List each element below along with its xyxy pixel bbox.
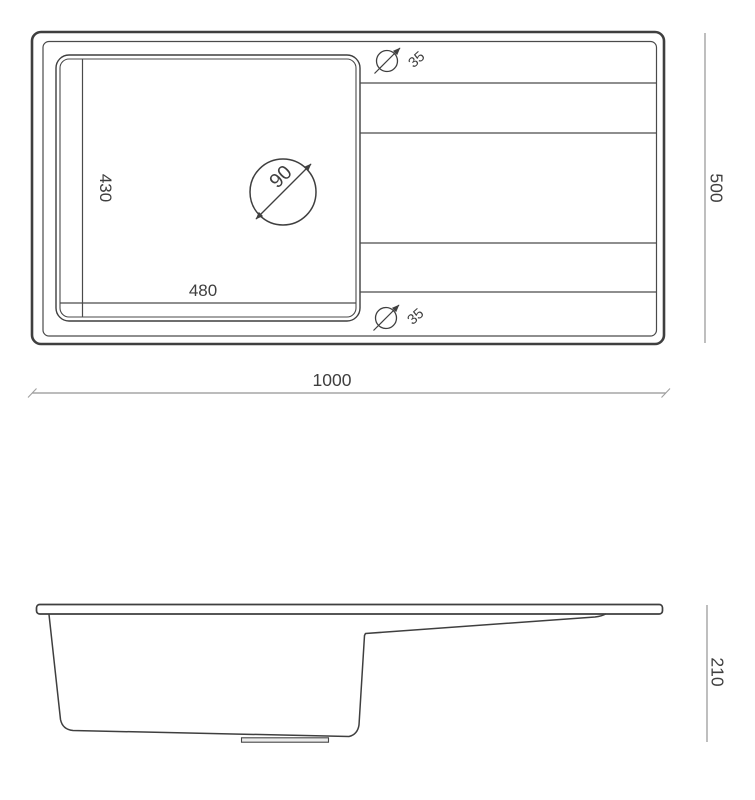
- sink-outer-edge: [32, 32, 664, 344]
- faucet-hole-top-label: 35: [406, 49, 429, 72]
- rim-profile: [37, 605, 663, 615]
- width-dimension-label: 1000: [313, 370, 352, 390]
- faucet-hole-top-diameter-line: [375, 48, 401, 74]
- sink-technical-drawing: 90 35 35 430 480 1000 500: [0, 0, 755, 800]
- bowl-depth-label: 430: [96, 174, 115, 202]
- bowl-width-label: 480: [189, 281, 217, 300]
- side-view: 210: [37, 605, 728, 743]
- drain-diameter-label: 90: [265, 161, 296, 192]
- faucet-hole-bottom-label: 35: [405, 306, 428, 329]
- drain-fitting: [242, 738, 329, 742]
- drawing-svg: 90 35 35 430 480 1000 500: [0, 0, 755, 800]
- side-profile: [49, 614, 606, 737]
- faucet-hole-bottom-diameter-line: [374, 305, 400, 331]
- height-dimension-label: 210: [708, 657, 728, 686]
- top-view: 90 35 35 430 480 1000 500: [28, 32, 727, 398]
- depth-dimension-label: 500: [707, 173, 727, 202]
